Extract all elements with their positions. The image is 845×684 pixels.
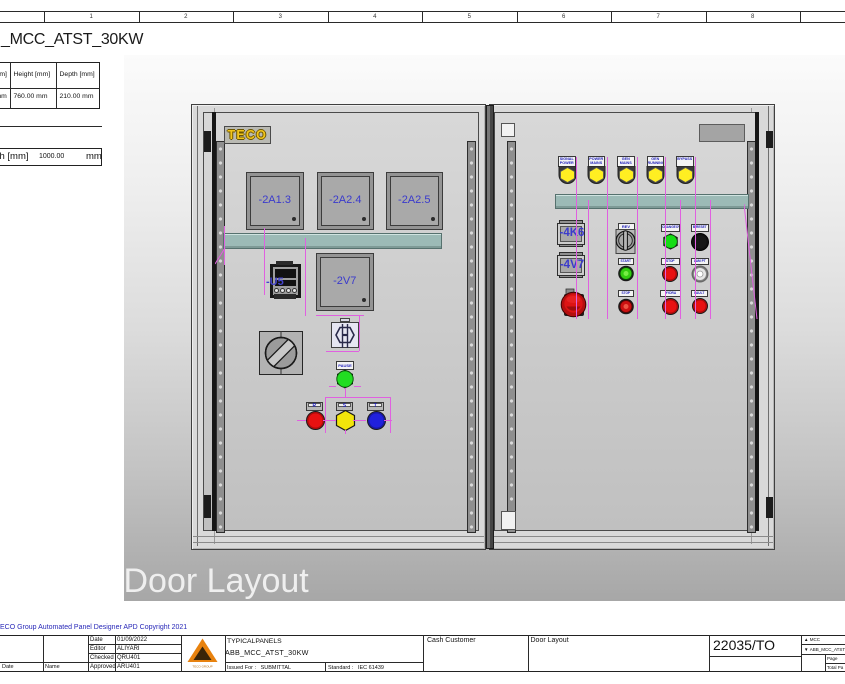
svg-text:TECO GROUP: TECO GROUP [192,665,212,669]
